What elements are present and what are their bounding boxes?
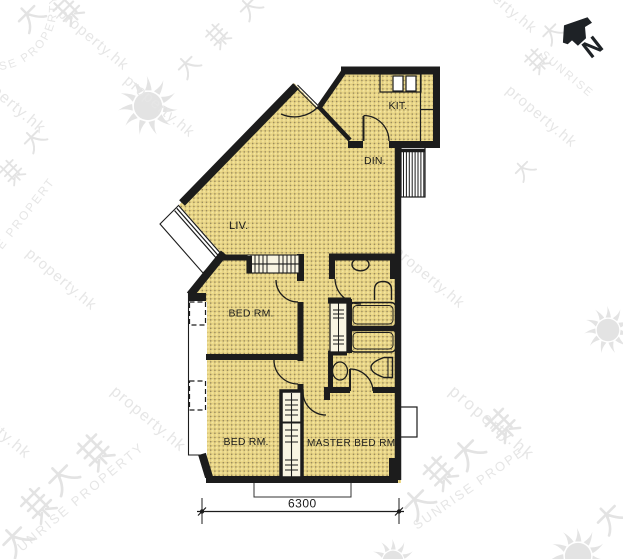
svg-text:E PROPERT: E PROPERT (0, 175, 58, 252)
svg-text:MASTER BED RM.: MASTER BED RM. (307, 438, 399, 449)
svg-text:BED RM.: BED RM. (224, 436, 269, 448)
svg-text:BED RM.: BED RM. (229, 308, 274, 320)
svg-text:DIN.: DIN. (364, 155, 386, 167)
svg-text:property.hk: property.hk (462, 0, 540, 37)
svg-text:LIV.: LIV. (229, 220, 248, 232)
svg-text:6300: 6300 (288, 497, 317, 511)
svg-text:KIT.: KIT. (389, 100, 408, 112)
svg-text:property.hk: property.hk (502, 82, 580, 151)
svg-text:property.hk: property.hk (107, 383, 188, 455)
svg-text:property.hk: property.hk (0, 65, 49, 137)
svg-text:SUNRISE PROPE: SUNRISE PROPE (410, 444, 527, 533)
svg-text:UNRISE PROPERTY: UNRISE PROPERTY (14, 439, 147, 554)
svg-text:property.hk: property.hk (0, 390, 34, 462)
svg-text:property.hk: property.hk (390, 243, 468, 312)
svg-text:property.hk: property.hk (22, 245, 100, 314)
